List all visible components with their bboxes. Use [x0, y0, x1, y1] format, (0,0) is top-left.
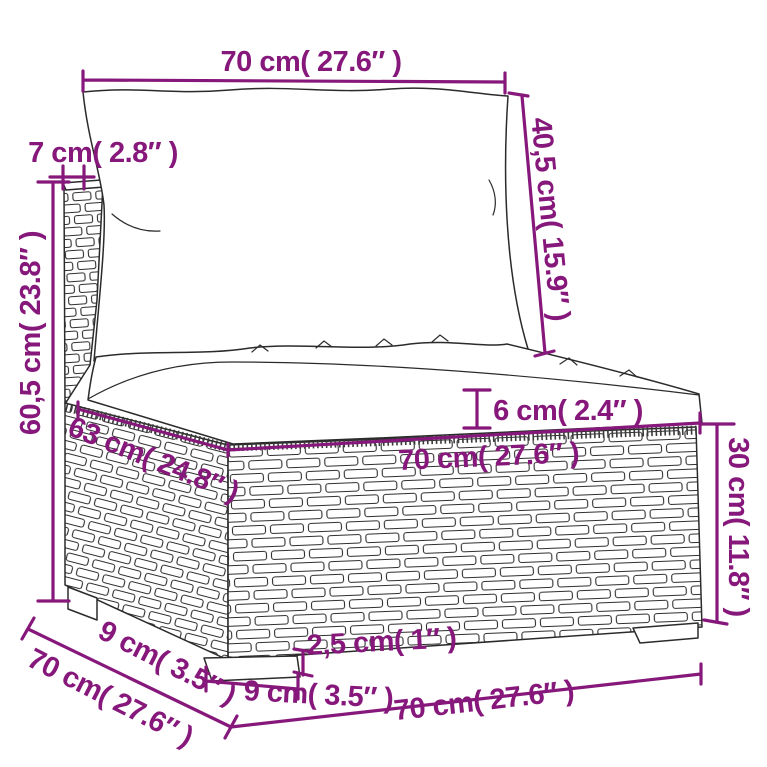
sofa-dimension-diagram: 70 cm( 27.6″ ) 7 cm( 2.8″ ) 60,5 cm( 23.…	[0, 0, 767, 767]
back-cushion	[83, 88, 528, 361]
dim-label-foot-height: 2,5 cm( 1″ )	[306, 622, 457, 662]
dim-label-base-height: 30 cm( 11.8″ )	[722, 437, 754, 616]
dim-base-height: 30 cm( 11.8″ )	[701, 424, 754, 624]
dim-label-top-width: 70 cm( 27.6″ )	[221, 46, 402, 78]
dim-total-height: 60,5 cm( 23.8″ )	[15, 182, 69, 601]
dim-label-back-thickness: 7 cm( 2.8″ )	[28, 137, 178, 169]
sofa-line-art	[63, 88, 702, 681]
dim-top-width: 70 cm( 27.6″ )	[83, 46, 505, 93]
dim-label-seat-cushion-thickness: 6 cm( 2.4″ )	[493, 395, 643, 427]
dim-label-total-height: 60,5 cm( 23.8″ )	[15, 231, 47, 435]
dim-foot-height: 2,5 cm( 1″ )	[294, 622, 457, 676]
dim-label-foot-width: 9 cm( 3.5″ )	[243, 675, 394, 715]
diagram-canvas: 70 cm( 27.6″ ) 7 cm( 2.8″ ) 60,5 cm( 23.…	[0, 0, 767, 767]
dim-label-bottom-width: 70 cm( 27.6″ )	[392, 675, 575, 727]
